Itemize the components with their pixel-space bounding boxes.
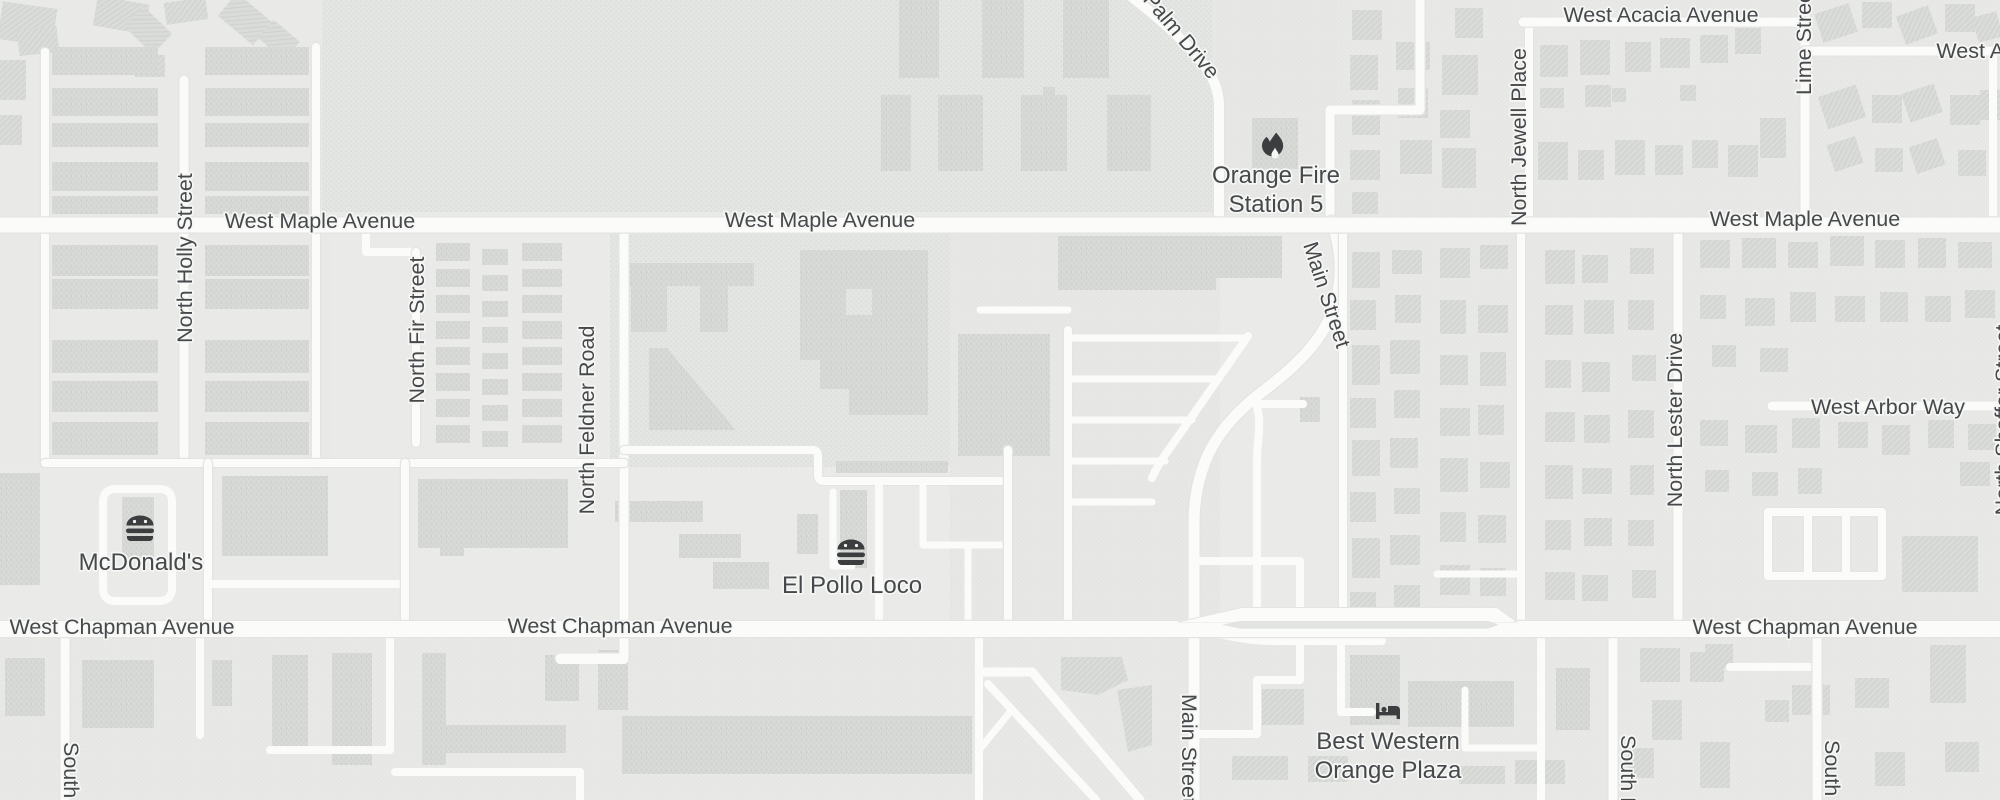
svg-text:North Holly Street: North Holly Street (173, 173, 197, 343)
svg-text:West Chapman Avenue: West Chapman Avenue (9, 615, 234, 639)
svg-text:West Maple Avenue: West Maple Avenue (725, 208, 915, 232)
svg-text:West Maple Avenue: West Maple Avenue (1710, 207, 1900, 231)
svg-text:West Maple Avenue: West Maple Avenue (225, 209, 415, 233)
svg-text:North Feldner Road: North Feldner Road (575, 326, 599, 515)
svg-text:North Lester Drive: North Lester Drive (1663, 333, 1687, 507)
svg-text:Orange Fire: Orange Fire (1212, 162, 1340, 189)
svg-text:West Acacia Avenue: West Acacia Avenue (1936, 39, 2000, 63)
svg-text:Lime Street: Lime Street (1792, 0, 1816, 95)
svg-text:South Lester Drive: South Lester Drive (1820, 740, 1844, 800)
svg-text:North Shaffer Street: North Shaffer Street (1991, 325, 2000, 516)
svg-text:South Holly Street: South Holly Street (59, 742, 83, 800)
svg-text:West Chapman Avenue: West Chapman Avenue (507, 614, 732, 638)
svg-text:Orange Plaza: Orange Plaza (1315, 757, 1462, 784)
svg-text:West Acacia Avenue: West Acacia Avenue (1563, 3, 1758, 27)
svg-text:West Arbor Way: West Arbor Way (1811, 395, 1965, 419)
svg-text:North Jewell Place: North Jewell Place (1507, 48, 1531, 226)
svg-text:Best Western: Best Western (1316, 728, 1460, 755)
svg-text:Station 5: Station 5 (1229, 191, 1324, 218)
svg-text:Main Street: Main Street (1177, 694, 1201, 800)
svg-text:McDonald's: McDonald's (79, 549, 204, 576)
svg-text:El Pollo Loco: El Pollo Loco (782, 572, 922, 599)
svg-text:North Fir Street: North Fir Street (405, 256, 429, 403)
svg-text:South Flower Street: South Flower Street (1616, 735, 1640, 800)
svg-text:West Chapman Avenue: West Chapman Avenue (1692, 615, 1917, 639)
